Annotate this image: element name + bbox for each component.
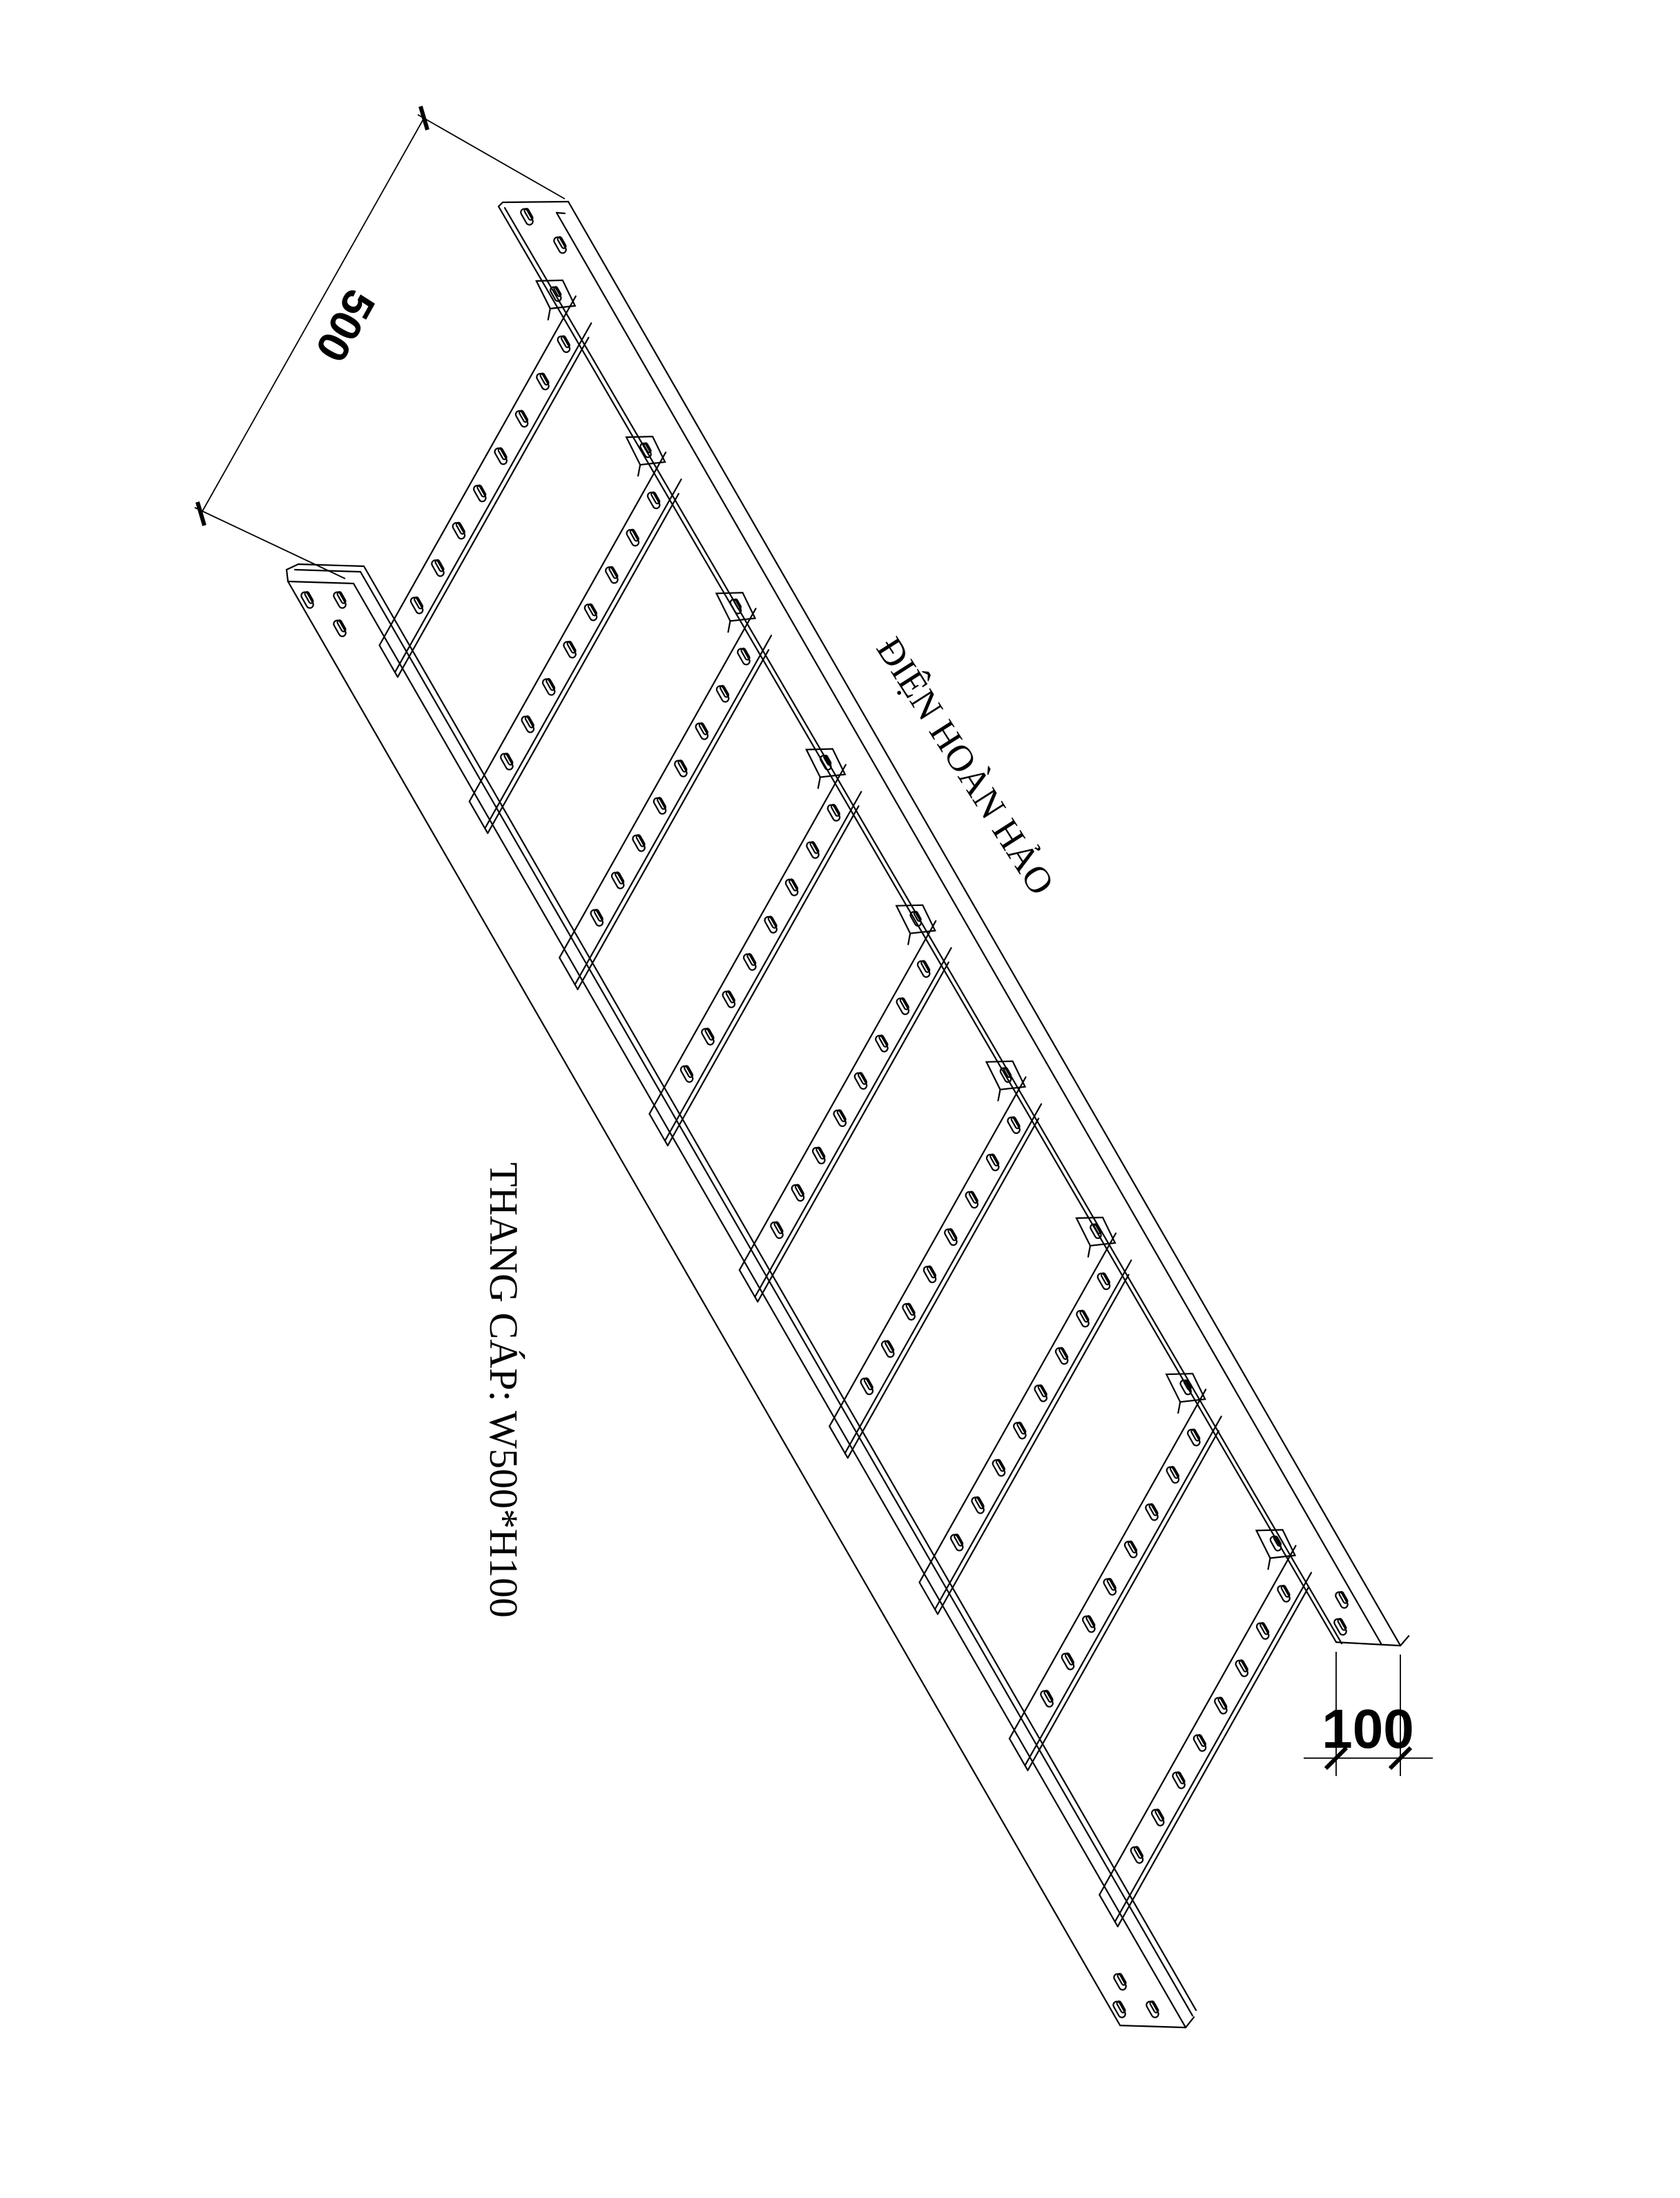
punched-slot-icon — [736, 647, 752, 666]
right-rail-flange-edge — [557, 213, 1381, 1643]
rung-top-edge — [1010, 1389, 1206, 1739]
punched-slot-icon — [1090, 1222, 1103, 1240]
punched-slot-icon — [791, 1183, 807, 1202]
rung-top-edge — [559, 608, 755, 958]
left-rail-lip-end-edge — [298, 564, 364, 566]
punched-slot-icon — [549, 285, 563, 302]
rung-bottom-edge — [395, 323, 591, 673]
punched-slot-icon — [604, 565, 620, 584]
punched-slot-icon — [985, 1153, 1001, 1172]
punched-slot-icon — [1034, 1383, 1050, 1402]
punched-slot-icon — [1186, 1427, 1202, 1447]
punched-slot-icon — [583, 602, 599, 621]
right-rail-top-corner-line — [568, 202, 1400, 1646]
left-rail-top-corner-line — [354, 584, 1186, 2027]
rung-mount-tab-edge — [1088, 1246, 1090, 1257]
punched-slot-icon — [472, 483, 488, 503]
punched-slot-icon — [805, 840, 821, 860]
punched-slot-icon — [769, 1220, 785, 1240]
dimension-width: 500 — [195, 106, 565, 579]
punched-slot-icon — [494, 446, 510, 465]
punched-slot-icon — [535, 372, 551, 391]
rung-left-end-edge — [829, 1426, 848, 1458]
extension-line — [418, 115, 565, 199]
punched-slot-icon — [563, 640, 579, 659]
rung-left-end-edge — [1010, 1739, 1028, 1771]
punched-slot-icon — [1123, 1540, 1139, 1559]
punched-slot-icon — [695, 722, 711, 741]
punched-slot-icon — [646, 490, 662, 510]
punched-slot-icon — [1213, 1696, 1229, 1715]
punched-slot-icon — [811, 1146, 827, 1165]
punched-slot-icon — [827, 803, 842, 822]
punched-slot-icon — [541, 677, 557, 697]
punched-slot-icon — [590, 908, 606, 927]
extension-line — [195, 508, 345, 579]
punched-slot-icon — [949, 1533, 965, 1552]
punched-slot-icon — [632, 833, 648, 853]
punched-slot-icon — [860, 1376, 876, 1396]
punched-slot-icon — [639, 441, 653, 459]
punched-slot-icon — [742, 952, 758, 972]
right-rail-bottom-end-edge — [1336, 1642, 1400, 1646]
rung-mount-tab-edge — [1178, 1402, 1180, 1413]
ladder-line-work — [287, 202, 1409, 2027]
rung-top-edge — [1099, 1545, 1295, 1895]
rung-top-edge — [740, 921, 936, 1271]
right-rail-bottom-bevel — [1400, 1636, 1409, 1646]
dimension-height: 100 — [1304, 1652, 1433, 1776]
left-rail-bottom-bevel — [1186, 2017, 1194, 2027]
punched-slot-icon — [679, 1064, 695, 1083]
dimension-line — [201, 118, 424, 514]
punched-slot-icon — [332, 590, 348, 610]
cable-ladder-technical-drawing: 500 100 ĐIỆN HOÀN HẢO THANG CÁP: W500*H1… — [0, 0, 1680, 2198]
punched-slot-icon — [729, 598, 743, 615]
rung-left-end-edge — [740, 1270, 757, 1302]
punched-slot-icon — [610, 871, 626, 890]
punched-slot-icon — [1269, 1535, 1283, 1552]
right-rail-web-edge-inner — [505, 208, 1342, 1643]
rung-mount-tab-edge — [638, 465, 640, 476]
punched-slot-icon — [1172, 1771, 1188, 1790]
punched-slot-icon — [1103, 1577, 1119, 1597]
punched-slot-icon — [332, 619, 348, 638]
rung-mount-tab — [807, 749, 845, 778]
rung-side-edge — [848, 1119, 1039, 1458]
dimension-tick-icon — [197, 502, 204, 526]
rung-left-end-edge — [650, 1114, 668, 1146]
punched-slot-icon — [1130, 1845, 1146, 1864]
punched-slot-icon — [992, 1458, 1007, 1477]
punched-slot-icon — [999, 1066, 1013, 1083]
punched-slot-icon — [673, 759, 689, 778]
punched-slot-icon — [409, 595, 425, 615]
rung-side-edge — [757, 963, 949, 1302]
punched-slot-icon — [965, 1190, 981, 1209]
left-rail-end-connector — [287, 564, 298, 570]
rung-mount-tab-edge — [1268, 1558, 1271, 1569]
punched-slot-icon — [1334, 1590, 1350, 1610]
rung-top-edge — [470, 452, 666, 802]
punched-slot-icon — [853, 1071, 869, 1090]
left-rail-end-edge — [288, 581, 354, 584]
punched-slot-icon — [1144, 1503, 1160, 1522]
product-label-text: THANG CÁP: W500*H100 — [481, 1162, 526, 1618]
punched-slot-icon — [1166, 1465, 1181, 1485]
rung-side-edge — [578, 650, 769, 989]
right-rail-end-edge — [503, 202, 568, 202]
rung-mount-tab-edge — [908, 934, 910, 945]
punched-slot-icon — [1150, 1808, 1166, 1827]
rung-mount-tab-edge — [728, 621, 731, 632]
rung-mount-tab-edge — [548, 309, 550, 320]
rung-top-edge — [650, 765, 846, 1115]
punched-slot-icon — [1061, 1652, 1076, 1671]
punched-slot-icon — [1179, 1378, 1193, 1396]
punched-slot-icon — [1007, 1115, 1023, 1135]
left-rail-bottom-end-edge — [1120, 2025, 1186, 2027]
punched-slot-icon — [874, 1034, 890, 1053]
punched-slot-icon — [1277, 1584, 1293, 1603]
rung-top-edge — [829, 1077, 1025, 1427]
punched-slot-icon — [916, 959, 932, 979]
right-rail-flange-cut — [557, 213, 565, 213]
punched-slot-icon — [1097, 1271, 1112, 1291]
rung-left-end-edge — [920, 1583, 938, 1614]
punched-slot-icon — [923, 1264, 938, 1284]
right-rail-web-edge — [499, 206, 1336, 1642]
punched-slot-icon — [1039, 1689, 1055, 1708]
punched-slot-icon — [552, 235, 568, 255]
punched-slot-icon — [519, 207, 535, 226]
punched-slot-icon — [1255, 1621, 1271, 1641]
punched-slot-icon — [880, 1339, 896, 1358]
punched-slot-icon — [430, 558, 446, 577]
punched-slot-icon — [971, 1496, 987, 1515]
punched-slot-icon — [499, 752, 515, 771]
punched-slot-icon — [1235, 1659, 1251, 1678]
punched-slot-icon — [521, 715, 537, 734]
rung-mount-tab — [896, 905, 935, 934]
drawing-sheet: 500 100 ĐIỆN HOÀN HẢO THANG CÁP: W500*H1… — [0, 0, 1680, 2198]
punched-slot-icon — [626, 528, 641, 547]
punched-slot-icon — [784, 878, 800, 897]
rung-side-edge — [938, 1275, 1129, 1614]
punched-slot-icon — [1112, 1972, 1128, 1992]
punched-slot-icon — [1012, 1420, 1028, 1440]
punched-slot-icon — [715, 684, 731, 704]
rung-mount-tab-edge — [818, 778, 820, 789]
punched-slot-icon — [722, 990, 737, 1009]
punched-slot-icon — [902, 1302, 918, 1321]
rung-side-edge — [398, 338, 589, 677]
rung-top-edge — [380, 296, 576, 646]
punched-slot-icon — [909, 910, 923, 927]
punched-slot-icon — [1081, 1614, 1097, 1634]
punched-slot-icon — [1145, 2000, 1161, 2019]
punched-slot-icon — [943, 1227, 959, 1246]
punched-slot-icon — [1054, 1346, 1070, 1365]
punched-slot-icon — [1193, 1733, 1208, 1753]
punched-slot-icon — [452, 521, 467, 540]
punched-slot-icon — [514, 409, 530, 428]
rung-side-edge — [487, 494, 679, 833]
rung-bottom-edge — [845, 1104, 1041, 1454]
rung-mount-tab — [717, 592, 755, 621]
dimension-width-value: 500 — [306, 282, 385, 370]
right-rail-end-bevel — [499, 202, 503, 206]
punched-slot-icon — [764, 915, 780, 934]
punched-slot-icon — [653, 796, 668, 816]
punched-slot-icon — [833, 1108, 849, 1128]
punched-slot-icon — [1075, 1309, 1091, 1328]
rung-left-end-edge — [470, 802, 488, 833]
rung-bottom-edge — [1025, 1416, 1221, 1766]
rung-bottom-edge — [1115, 1572, 1311, 1922]
rung-bottom-edge — [665, 792, 861, 1141]
rung-mount-tab-edge — [998, 1090, 1001, 1101]
dimension-tick-icon — [421, 106, 427, 130]
rung-top-edge — [920, 1233, 1116, 1583]
rung-bottom-edge — [935, 1260, 1131, 1610]
left-rail-end-connector — [287, 570, 288, 581]
punched-slot-icon — [700, 1027, 716, 1046]
brand-watermark-text: ĐIỆN HOÀN HẢO — [869, 630, 1063, 902]
punched-slot-icon — [557, 334, 572, 354]
rung-side-edge — [668, 806, 859, 1146]
dimension-height-value: 100 — [1322, 1698, 1413, 1760]
rung-bottom-edge — [755, 948, 951, 1298]
rung-side-edge — [1027, 1431, 1218, 1771]
rung-left-end-edge — [380, 646, 398, 677]
rung-left-end-edge — [559, 958, 577, 990]
rung-left-end-edge — [1099, 1895, 1118, 1927]
punched-slot-icon — [896, 996, 911, 1016]
rung-side-edge — [1118, 1587, 1309, 1927]
rung-bottom-edge — [485, 479, 681, 829]
rung-mount-tab — [1166, 1373, 1205, 1402]
rung-bottom-edge — [575, 635, 771, 985]
